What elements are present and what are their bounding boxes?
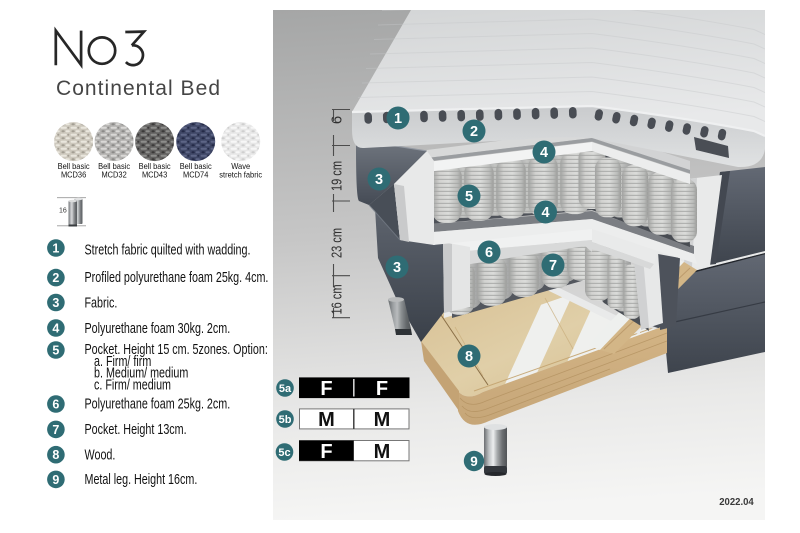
svg-text:stretch fabric: stretch fabric [219, 169, 262, 179]
svg-text:3: 3 [393, 260, 401, 276]
svg-text:1: 1 [52, 242, 59, 256]
svg-text:16: 16 [59, 208, 67, 215]
svg-text:4: 4 [52, 322, 59, 336]
svg-text:4: 4 [541, 205, 549, 221]
svg-text:3: 3 [375, 172, 383, 188]
svg-text:5: 5 [465, 189, 473, 205]
svg-text:Pocket. Height 13cm.: Pocket. Height 13cm. [85, 421, 187, 438]
svg-text:Profiled polyurethane foam 25k: Profiled polyurethane foam 25kg. 4cm. [85, 269, 269, 286]
svg-text:5: 5 [52, 344, 59, 358]
svg-text:M: M [318, 409, 335, 431]
svg-text:9: 9 [470, 454, 478, 469]
svg-text:8: 8 [52, 448, 59, 462]
svg-text:7: 7 [52, 423, 59, 437]
svg-text:c. Firm/ medium: c. Firm/ medium [94, 376, 171, 393]
svg-text:Fabric.: Fabric. [85, 295, 118, 312]
svg-text:Continental Bed: Continental Bed [56, 77, 220, 100]
svg-text:6: 6 [485, 245, 493, 261]
svg-text:Polyurethane foam 30kg. 2cm.: Polyurethane foam 30kg. 2cm. [85, 320, 231, 337]
svg-text:MCD32: MCD32 [101, 169, 126, 179]
svg-text:M: M [374, 409, 391, 431]
svg-text:MCD36: MCD36 [61, 169, 86, 179]
svg-text:Stretch fabric quilted with wa: Stretch fabric quilted with wadding. [85, 241, 251, 258]
svg-text:5b: 5b [279, 414, 292, 426]
svg-text:M: M [374, 441, 391, 463]
svg-text:2022.04: 2022.04 [719, 496, 754, 508]
svg-text:8: 8 [465, 349, 473, 365]
svg-text:6: 6 [52, 398, 59, 412]
svg-text:MCD43: MCD43 [142, 169, 167, 179]
svg-text:Metal leg. Height 16cm.: Metal leg. Height 16cm. [85, 471, 198, 488]
svg-text:F: F [320, 378, 332, 400]
svg-text:1: 1 [394, 111, 402, 127]
svg-text:3: 3 [52, 296, 59, 310]
svg-text:F: F [376, 378, 388, 400]
svg-text:Wood.: Wood. [85, 447, 116, 464]
svg-text:Polyurethane foam 25kg. 2cm.: Polyurethane foam 25kg. 2cm. [85, 396, 231, 413]
svg-text:23 cm: 23 cm [329, 228, 346, 258]
svg-text:7: 7 [549, 258, 557, 274]
svg-text:F: F [320, 441, 332, 463]
svg-text:2: 2 [52, 271, 59, 285]
svg-text:6: 6 [329, 116, 346, 124]
svg-text:MCD74: MCD74 [183, 169, 208, 179]
svg-text:5a: 5a [279, 383, 292, 395]
svg-text:16 cm: 16 cm [329, 285, 346, 315]
svg-text:19 cm: 19 cm [329, 161, 346, 191]
svg-text:4: 4 [540, 145, 548, 161]
svg-text:9: 9 [52, 473, 59, 487]
svg-text:5c: 5c [278, 447, 290, 459]
svg-text:2: 2 [470, 124, 478, 140]
